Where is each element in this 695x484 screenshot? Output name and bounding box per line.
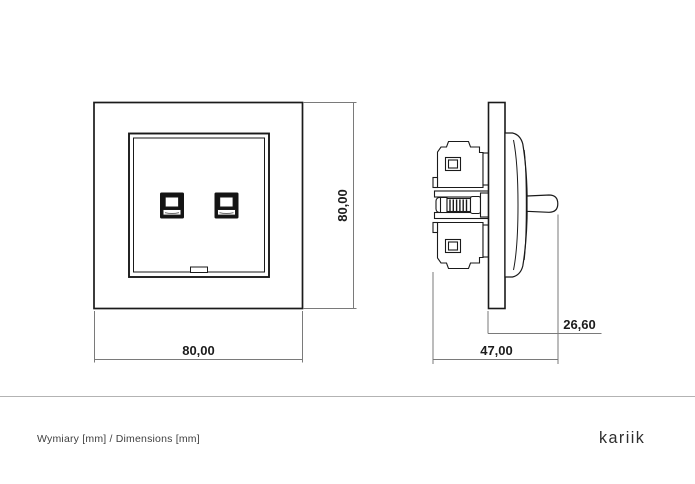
cover-profile — [505, 133, 527, 277]
depth-dimension-label: 47,00 — [480, 343, 513, 358]
jack-right — [215, 193, 239, 219]
jack-left — [160, 193, 184, 219]
mechanism-profile — [433, 142, 489, 269]
drawing-canvas: 80,00 80,00 26,60 47,00 Wymiary [mm] / D… — [0, 0, 695, 484]
width-dimension-label: 80,00 — [182, 343, 215, 358]
footer-divider — [0, 396, 695, 397]
front-module-inner-border — [134, 138, 265, 272]
front-view — [94, 103, 303, 309]
units-note: Wymiary [mm] / Dimensions [mm] — [37, 433, 200, 445]
plate-profile — [489, 103, 506, 309]
protrusion-dimension-label: 26,60 — [563, 317, 596, 332]
module-bottom-notch — [191, 267, 208, 273]
technical-drawing-svg: 80,00 80,00 26,60 47,00 — [0, 0, 695, 484]
side-view — [433, 103, 558, 309]
height-dimension-label: 80,00 — [335, 189, 350, 222]
brand-logo: kariik — [599, 428, 645, 448]
connector-nose — [527, 195, 558, 212]
